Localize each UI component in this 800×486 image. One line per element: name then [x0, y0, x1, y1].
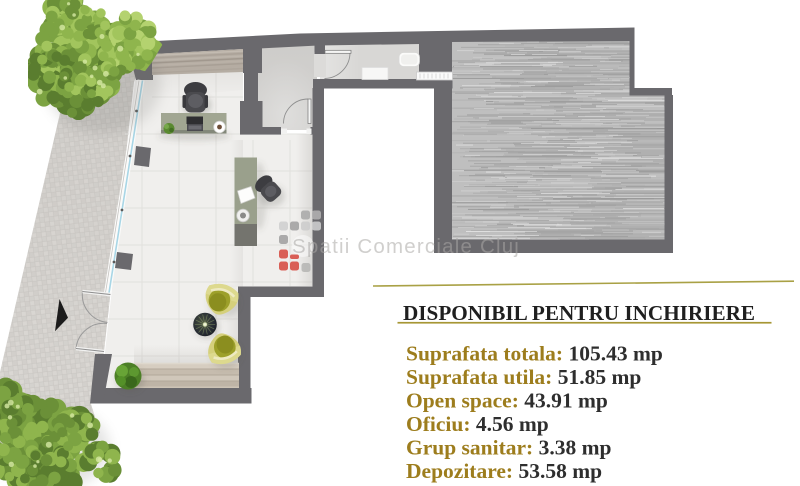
svg-text:Suprafata totala: 105.43 mp: Suprafata totala: 105.43 mp [406, 342, 663, 366]
svg-text:Spatii Comerciale Cluj: Spatii Comerciale Cluj [292, 235, 520, 258]
svg-text:Open space: 43.91 mp: Open space: 43.91 mp [406, 389, 608, 413]
svg-text:Suprafata utila: 51.85 mp: Suprafata utila: 51.85 mp [406, 365, 641, 389]
svg-text:Oficiu: 4.56 mp: Oficiu: 4.56 mp [406, 412, 549, 436]
svg-text:Grup sanitar: 3.38 mp: Grup sanitar: 3.38 mp [406, 436, 612, 460]
svg-text:DISPONIBIL PENTRU INCHIRIERE: DISPONIBIL PENTRU INCHIRIERE [403, 301, 755, 325]
svg-text:Depozitare: 53.58 mp: Depozitare: 53.58 mp [406, 459, 602, 483]
